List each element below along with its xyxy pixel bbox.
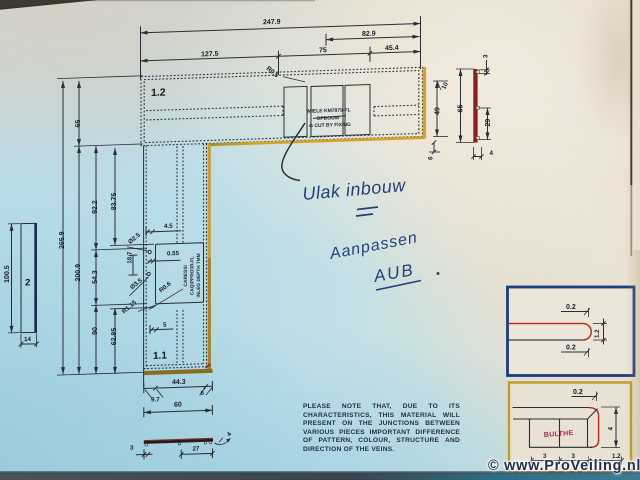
svg-text:18.7: 18.7	[127, 251, 134, 264]
svg-text:Aanpassen: Aanpassen	[328, 229, 420, 263]
svg-text:127.5: 127.5	[201, 51, 219, 59]
svg-text:14: 14	[24, 336, 31, 343]
svg-text:6: 6	[201, 390, 205, 397]
svg-text:27: 27	[193, 445, 200, 452]
svg-text:R1.15: R1.15	[121, 299, 139, 316]
svg-text:MIELE KM7879-FL: MIELE KM7879-FL	[307, 107, 350, 114]
svg-text:92.2: 92.2	[92, 200, 99, 214]
svg-text:10: 10	[440, 81, 450, 91]
svg-text:75: 75	[319, 47, 327, 54]
svg-text:83.75: 83.75	[111, 192, 118, 210]
svg-text:4: 4	[490, 150, 494, 157]
svg-text:247.9: 247.9	[263, 19, 281, 27]
svg-text:4.5: 4.5	[164, 223, 173, 230]
svg-text:60: 60	[174, 401, 182, 408]
svg-text:1.2: 1.2	[594, 329, 601, 338]
svg-text:CAQIPPRO3R-FL: CAQIPPRO3R-FL	[190, 256, 196, 295]
svg-text:90: 90	[92, 327, 99, 335]
svg-text:0.2: 0.2	[566, 304, 576, 311]
svg-text:49: 49	[435, 107, 442, 115]
svg-text:5: 5	[163, 321, 167, 328]
svg-text:CARESSI: CARESSI	[183, 264, 189, 286]
svg-text:9.7: 9.7	[151, 396, 160, 403]
svg-text:45.4: 45.4	[385, 45, 399, 52]
svg-text:0.55: 0.55	[167, 250, 180, 257]
svg-text:4: 4	[226, 431, 234, 438]
svg-text:INLEG DEPTH 7MM: INLEG DEPTH 7MM	[196, 253, 202, 297]
svg-text:0.2: 0.2	[566, 345, 576, 352]
svg-text:29: 29	[485, 119, 492, 127]
svg-text:54.3: 54.3	[92, 270, 99, 284]
svg-text:100.5: 100.5	[4, 265, 11, 283]
svg-text:R0.5: R0.5	[265, 65, 280, 79]
svg-text:Ø2.5: Ø2.5	[127, 231, 142, 245]
svg-text:82.9: 82.9	[362, 31, 376, 38]
svg-text:1.1: 1.1	[153, 350, 167, 361]
svg-text:65: 65	[75, 119, 82, 127]
svg-text:3: 3	[130, 445, 134, 452]
svg-text:200.9: 200.9	[75, 264, 82, 282]
svg-text:265.9: 265.9	[59, 231, 66, 249]
svg-text:4: 4	[608, 427, 615, 431]
svg-text:44.3: 44.3	[172, 379, 186, 386]
svg-text:Ulak inbouw: Ulak inbouw	[302, 175, 407, 204]
svg-text:6: 6	[428, 156, 435, 160]
svg-text:1.2: 1.2	[151, 87, 166, 99]
svg-text:65: 65	[458, 105, 465, 113]
svg-text:3: 3	[483, 54, 490, 58]
svg-text:0.2: 0.2	[573, 389, 583, 396]
svg-text:R0.6: R0.6	[158, 280, 173, 294]
svg-text:2: 2	[25, 277, 30, 288]
svg-text:62.85: 62.85	[111, 327, 118, 345]
